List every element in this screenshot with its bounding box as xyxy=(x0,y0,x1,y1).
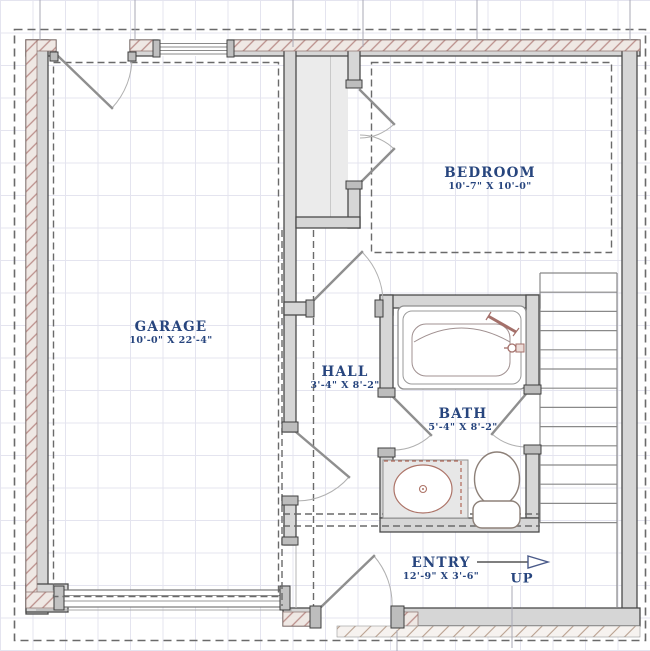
vanity-sink xyxy=(383,460,468,518)
bedroom-ceiling-outline xyxy=(372,63,612,253)
hall-label: HALL 3'-4" X 8'-2" xyxy=(310,365,379,391)
floor-plan-drawing xyxy=(0,0,650,651)
garage-right-wall-upper xyxy=(284,47,296,432)
garage-entry-door-leaf xyxy=(58,56,112,108)
bathtub xyxy=(398,306,526,389)
up-arrow-icon xyxy=(477,556,548,568)
hall-name: HALL xyxy=(310,365,379,381)
garage-hall-door-leaf xyxy=(296,432,349,477)
toilet xyxy=(473,452,520,528)
entry-name: ENTRY xyxy=(403,556,479,572)
bedroom-door-leaf xyxy=(312,252,362,302)
bedroom-dims: 10'-7" X 10'-0" xyxy=(444,181,536,192)
stairs-up-label: UP xyxy=(510,572,533,587)
garage-dims: 10'-0" X 22'-4" xyxy=(129,335,212,346)
closet-door-leaf-top xyxy=(360,90,394,124)
staircase xyxy=(540,273,617,608)
entry-dims: 12'-9" X 3'-6" xyxy=(403,571,479,582)
garage-door xyxy=(36,586,292,610)
entry-stoop-hatch xyxy=(337,626,640,637)
bedroom-label: BEDROOM 10'-7" X 10'-0" xyxy=(444,166,536,192)
bedroom-name: BEDROOM xyxy=(444,166,536,182)
bath-name: BATH xyxy=(428,407,497,423)
closet-door-leaf-bottom xyxy=(360,149,394,183)
garage-label: GARAGE 10'-0" X 22'-4" xyxy=(129,320,212,346)
closet-floor xyxy=(296,56,348,217)
bath-label: BATH 5'-4" X 8'-2" xyxy=(428,407,497,433)
bottom-wall-right xyxy=(392,608,640,626)
bath-door-leaf xyxy=(393,397,431,435)
garage-window xyxy=(153,40,234,57)
floor-plan: GARAGE 10'-0" X 22'-4" BEDROOM 10'-7" X … xyxy=(0,0,650,651)
entry-label: ENTRY 12'-9" X 3'-6" xyxy=(403,556,479,582)
bath-right-wall-top xyxy=(526,295,539,394)
bath-dims: 5'-4" X 8'-2" xyxy=(428,422,497,433)
right-wall xyxy=(622,40,637,626)
garage-name: GARAGE xyxy=(129,320,212,336)
bath-right-wall-bottom xyxy=(526,447,539,518)
closet-bottom-wall xyxy=(296,217,360,228)
hall-dims: 3'-4" X 8'-2" xyxy=(310,380,379,391)
entry-door-leaf xyxy=(320,556,374,608)
